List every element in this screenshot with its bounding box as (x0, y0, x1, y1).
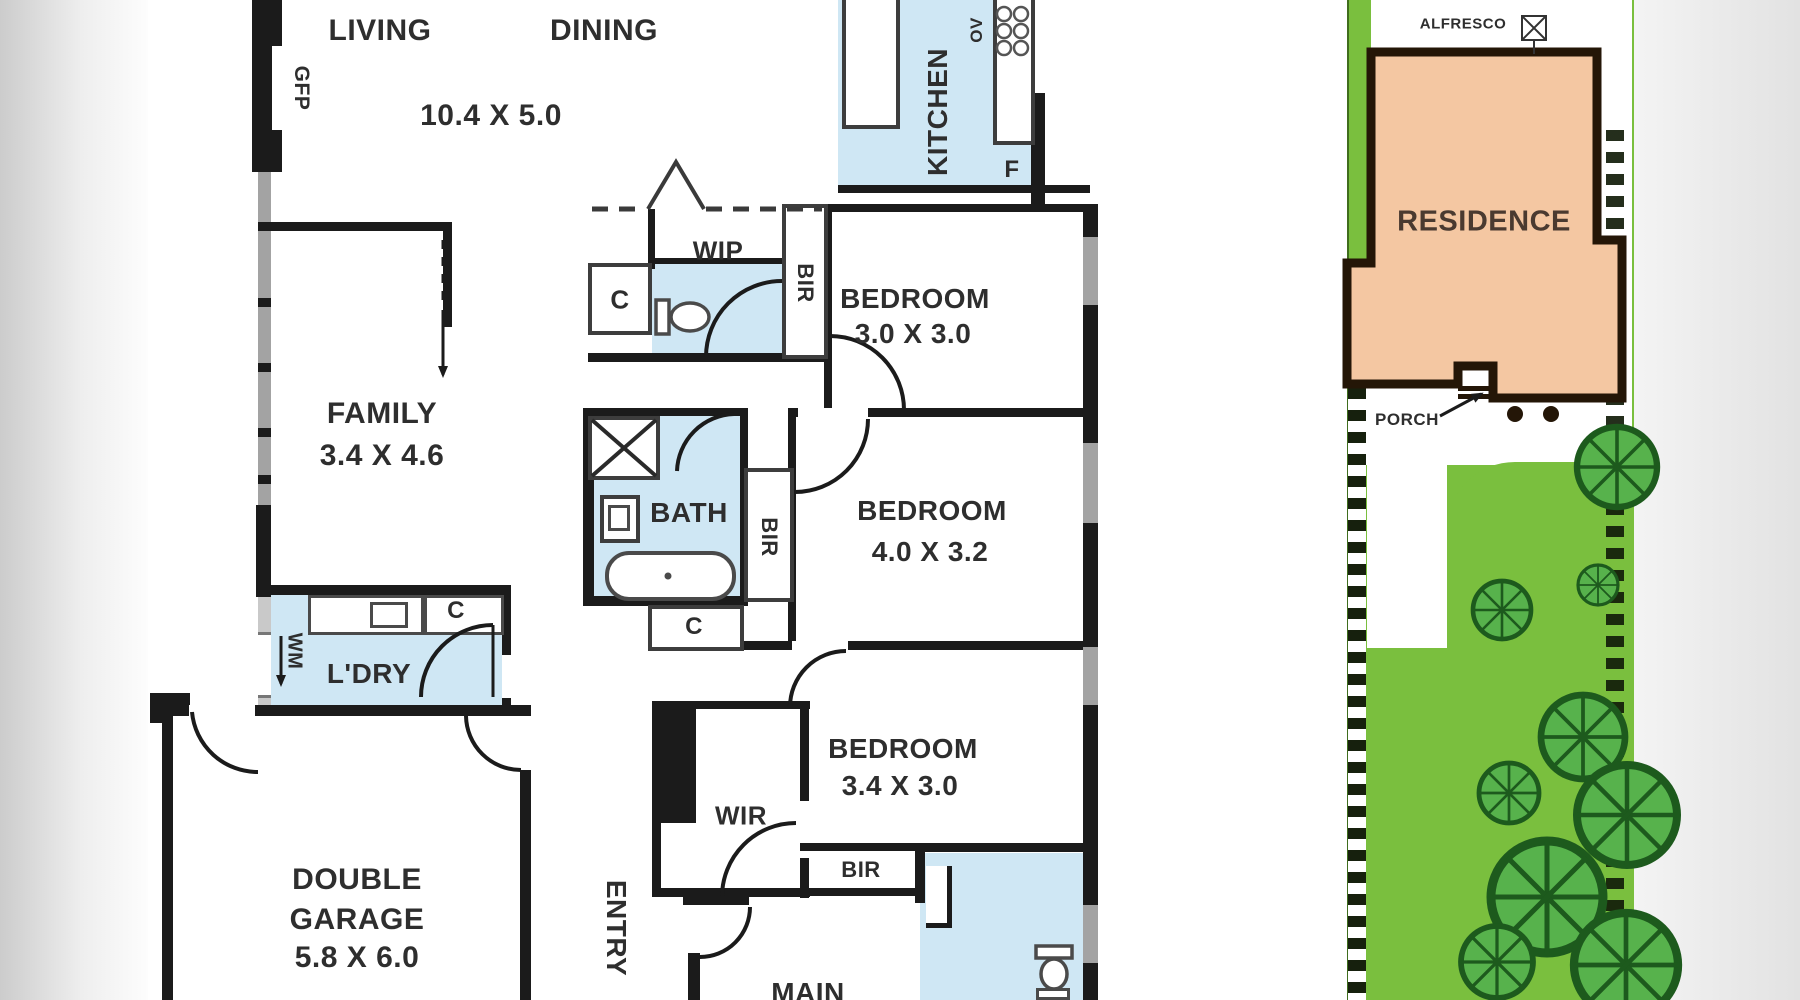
wall-segment (800, 843, 922, 851)
wall-segment (258, 428, 271, 437)
laundry-trough (370, 602, 408, 628)
living-dining-dims: 10.4 X 5.0 (420, 99, 562, 133)
wall-segment (258, 363, 271, 372)
garage-door-gap (520, 716, 531, 770)
cupboard-label: C (447, 597, 465, 625)
shower-screen (926, 866, 952, 928)
garage-dims: 5.8 X 6.0 (295, 941, 420, 975)
bedroom3-dims: 3.4 X 3.0 (842, 770, 959, 802)
porch-paving-lower (1367, 340, 1447, 648)
room-label-bedroom2: BEDROOM (857, 495, 1007, 527)
robe-label: BIR (792, 263, 818, 302)
door-gap (798, 408, 868, 417)
vanity-basin (608, 505, 630, 531)
oven-label: OV (967, 17, 987, 43)
garage-door-gap (189, 705, 255, 716)
wall-segment (583, 408, 748, 416)
room-label-wir: WIR (715, 801, 767, 832)
room-label-family: FAMILY (327, 397, 437, 431)
ensuite-vanity (1036, 988, 1070, 1000)
room-label-bedroom1: BEDROOM (840, 283, 990, 315)
wall-segment (915, 843, 1090, 852)
wall-segment (800, 888, 922, 896)
floor-wc (652, 263, 782, 360)
robe-label: BIR (841, 857, 880, 883)
wall-segment (258, 475, 271, 484)
cupboard-label: C (610, 285, 629, 316)
siteplan-alfresco-label: ALFRESCO (1420, 16, 1507, 33)
left-fence (1348, 278, 1366, 1000)
room-label-bath: BATH (650, 497, 728, 529)
washing-machine-label: WM (283, 633, 306, 670)
garage-label-line1: DOUBLE (292, 863, 422, 897)
bedroom2-dims: 4.0 X 3.2 (872, 536, 989, 568)
wip-opening (592, 162, 822, 209)
wall-segment (683, 895, 749, 905)
room-label-entry: ENTRY (600, 880, 632, 976)
gfp-niche (272, 46, 284, 130)
lawn-corner (1447, 462, 1605, 652)
siteplan-porch-label: PORCH (1375, 410, 1439, 430)
wall-segment (443, 222, 452, 327)
wall-segment (256, 505, 271, 597)
wall-segment (258, 222, 448, 231)
room-label-main: MAIN (771, 977, 845, 1000)
wall-segment (823, 204, 1090, 212)
wall-segment (162, 705, 173, 1000)
wall-segment (652, 820, 661, 895)
window-segment (1083, 237, 1098, 305)
door-gap (792, 641, 848, 650)
wall-segment (1083, 204, 1098, 1000)
wall-segment (800, 701, 809, 801)
bedroom1-dims: 3.0 X 3.0 (855, 318, 972, 350)
wall-segment (258, 585, 510, 595)
robe-label: BIR (756, 517, 782, 556)
wall-segment (258, 298, 271, 307)
cupboard-label: C (685, 613, 703, 641)
right-margin (1632, 0, 1800, 1000)
window-slot (258, 632, 271, 698)
right-fence (1606, 130, 1624, 1000)
wall-segment (838, 185, 1090, 193)
window-segment (1083, 905, 1098, 963)
room-label-laundry: L'DRY (327, 658, 411, 690)
siteplan-residence-label: RESIDENCE (1397, 206, 1571, 239)
shower (588, 416, 660, 480)
fridge-label: F (1004, 156, 1019, 184)
room-label-living: LIVING (328, 14, 431, 48)
kitchen-island-bench (842, 0, 900, 129)
garage-label-line2: GARAGE (290, 903, 425, 937)
kitchen-bench (993, 0, 1035, 145)
wall-segment (688, 953, 700, 1000)
wall-segment (915, 843, 925, 903)
window-segment (1083, 443, 1098, 523)
window-segment (1083, 647, 1098, 705)
room-label-kitchen: KITCHEN (922, 48, 954, 176)
floorplan-page: LIVING DINING 10.4 X 5.0 KITCHEN OV F GF… (0, 0, 1800, 1000)
room-label-dining: DINING (550, 14, 658, 48)
room-label-bedroom3: BEDROOM (828, 733, 978, 765)
family-dims: 3.4 X 4.6 (320, 439, 445, 473)
room-label-wip: WIP (693, 236, 744, 267)
wall-segment (652, 705, 696, 823)
gfp-label: GFP (289, 66, 313, 111)
left-margin (0, 0, 148, 1000)
